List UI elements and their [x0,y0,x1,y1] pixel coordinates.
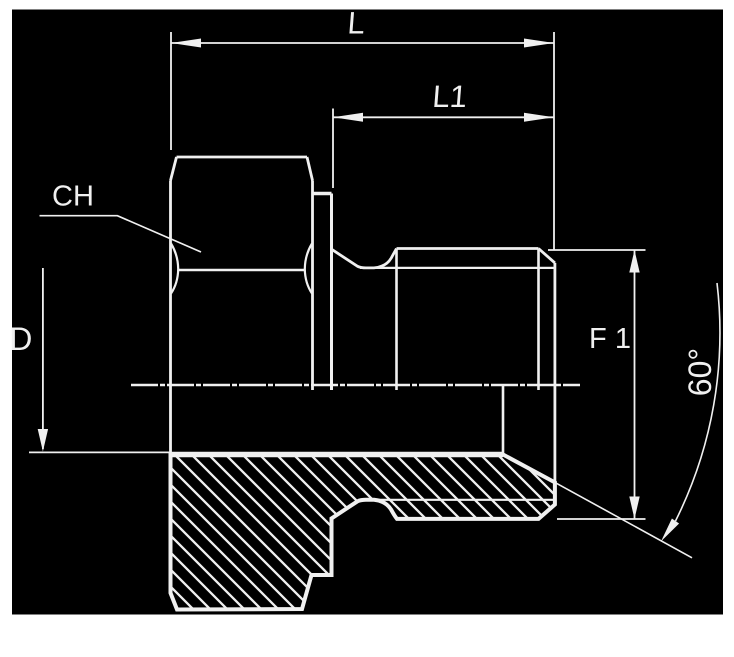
svg-text:L1: L1 [431,79,468,114]
svg-text:CH: CH [52,181,94,213]
svg-text:F 1: F 1 [589,323,631,355]
svg-text:D: D [9,321,32,357]
svg-text:L: L [346,6,366,41]
svg-text:60°: 60° [682,348,718,396]
